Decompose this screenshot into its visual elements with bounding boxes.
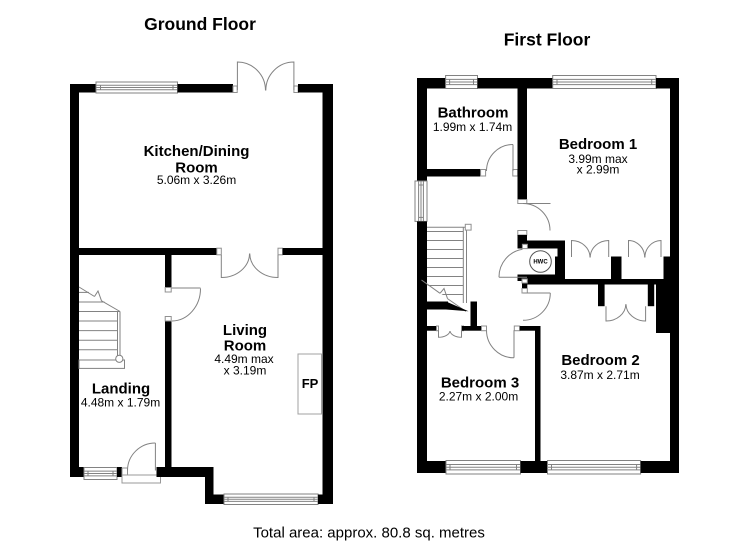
svg-text:Bedroom 1: Bedroom 1 — [559, 136, 637, 153]
svg-text:x 3.19m: x 3.19m — [224, 364, 267, 378]
svg-text:Total area: approx. 80.8 sq. m: Total area: approx. 80.8 sq. metres — [253, 525, 485, 542]
svg-text:1.99m x 1.74m: 1.99m x 1.74m — [433, 120, 512, 134]
svg-text:Ground Floor: Ground Floor — [144, 14, 256, 34]
svg-text:5.06m x 3.26m: 5.06m x 3.26m — [157, 173, 236, 187]
svg-text:Bedroom 2: Bedroom 2 — [561, 352, 639, 369]
svg-text:First Floor: First Floor — [504, 30, 591, 50]
svg-text:Kitchen/Dining: Kitchen/Dining — [144, 143, 250, 160]
svg-text:2.27m x 2.00m: 2.27m x 2.00m — [439, 390, 518, 404]
svg-text:HWC: HWC — [533, 260, 548, 266]
svg-text:x 2.99m: x 2.99m — [577, 163, 620, 177]
svg-text:3.87m x 2.71m: 3.87m x 2.71m — [560, 368, 639, 382]
svg-text:4.48m x 1.79m: 4.48m x 1.79m — [81, 396, 160, 410]
svg-text:FP: FP — [302, 376, 319, 391]
